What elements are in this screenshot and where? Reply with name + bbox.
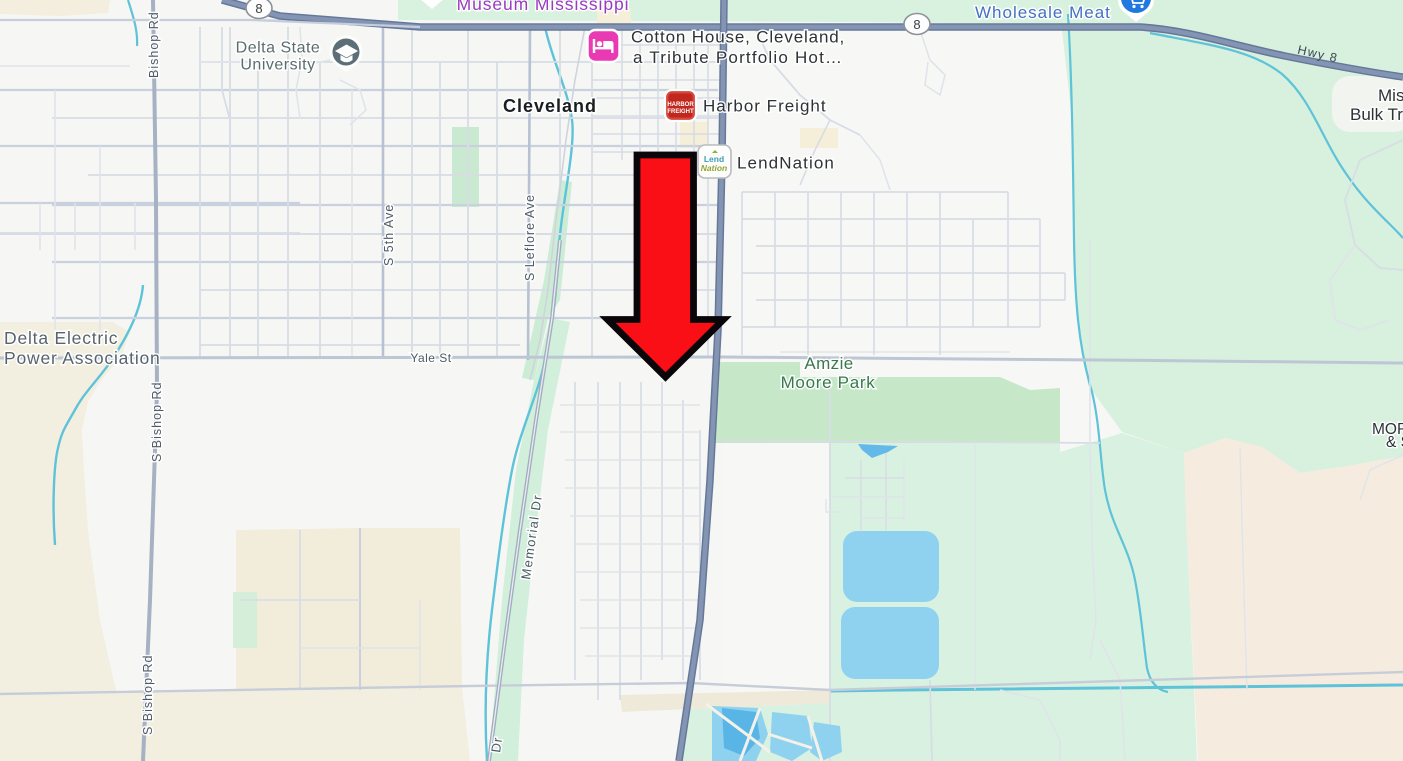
svg-text:Wholesale Meat: Wholesale Meat [975,3,1111,22]
svg-text:Harbor Freight: Harbor Freight [703,97,827,116]
svg-text:S Bishop Rd: S Bishop Rd [141,655,155,735]
svg-text:Bulk Tr: Bulk Tr [1350,105,1403,124]
svg-text:Missi: Missi [1378,86,1403,105]
svg-text:& S: & S [1386,434,1403,451]
svg-text:S Leflore Ave: S Leflore Ave [523,194,537,281]
svg-text:University: University [240,57,315,74]
svg-text:LendNation: LendNation [737,154,835,173]
svg-text:S Bishop Rd: S Bishop Rd [150,382,164,462]
svg-text:8: 8 [255,1,262,16]
svg-text:Cleveland: Cleveland [503,96,597,116]
svg-text:Bishop Rd: Bishop Rd [147,11,161,78]
svg-text:Delta Electric: Delta Electric [4,328,118,348]
svg-text:S 5th Ave: S 5th Ave [382,204,396,266]
svg-text:HARBOR: HARBOR [667,102,694,108]
svg-text:Delta State: Delta State [236,40,321,57]
svg-text:Yale St: Yale St [410,351,451,365]
svg-text:a Tribute Portfolio Hot…: a Tribute Portfolio Hot… [633,48,843,67]
svg-text:Amzie: Amzie [804,354,853,373]
svg-text:8: 8 [913,17,920,32]
svg-text:FREIGHT: FREIGHT [667,109,694,115]
svg-text:Nation: Nation [701,163,727,173]
svg-text:Power Association: Power Association [4,348,161,368]
svg-text:Museum Mississippi: Museum Mississippi [457,0,630,14]
svg-text:Cotton House, Cleveland,: Cotton House, Cleveland, [631,28,845,47]
svg-text:Dr: Dr [488,736,505,754]
svg-text:Moore Park: Moore Park [781,373,876,392]
